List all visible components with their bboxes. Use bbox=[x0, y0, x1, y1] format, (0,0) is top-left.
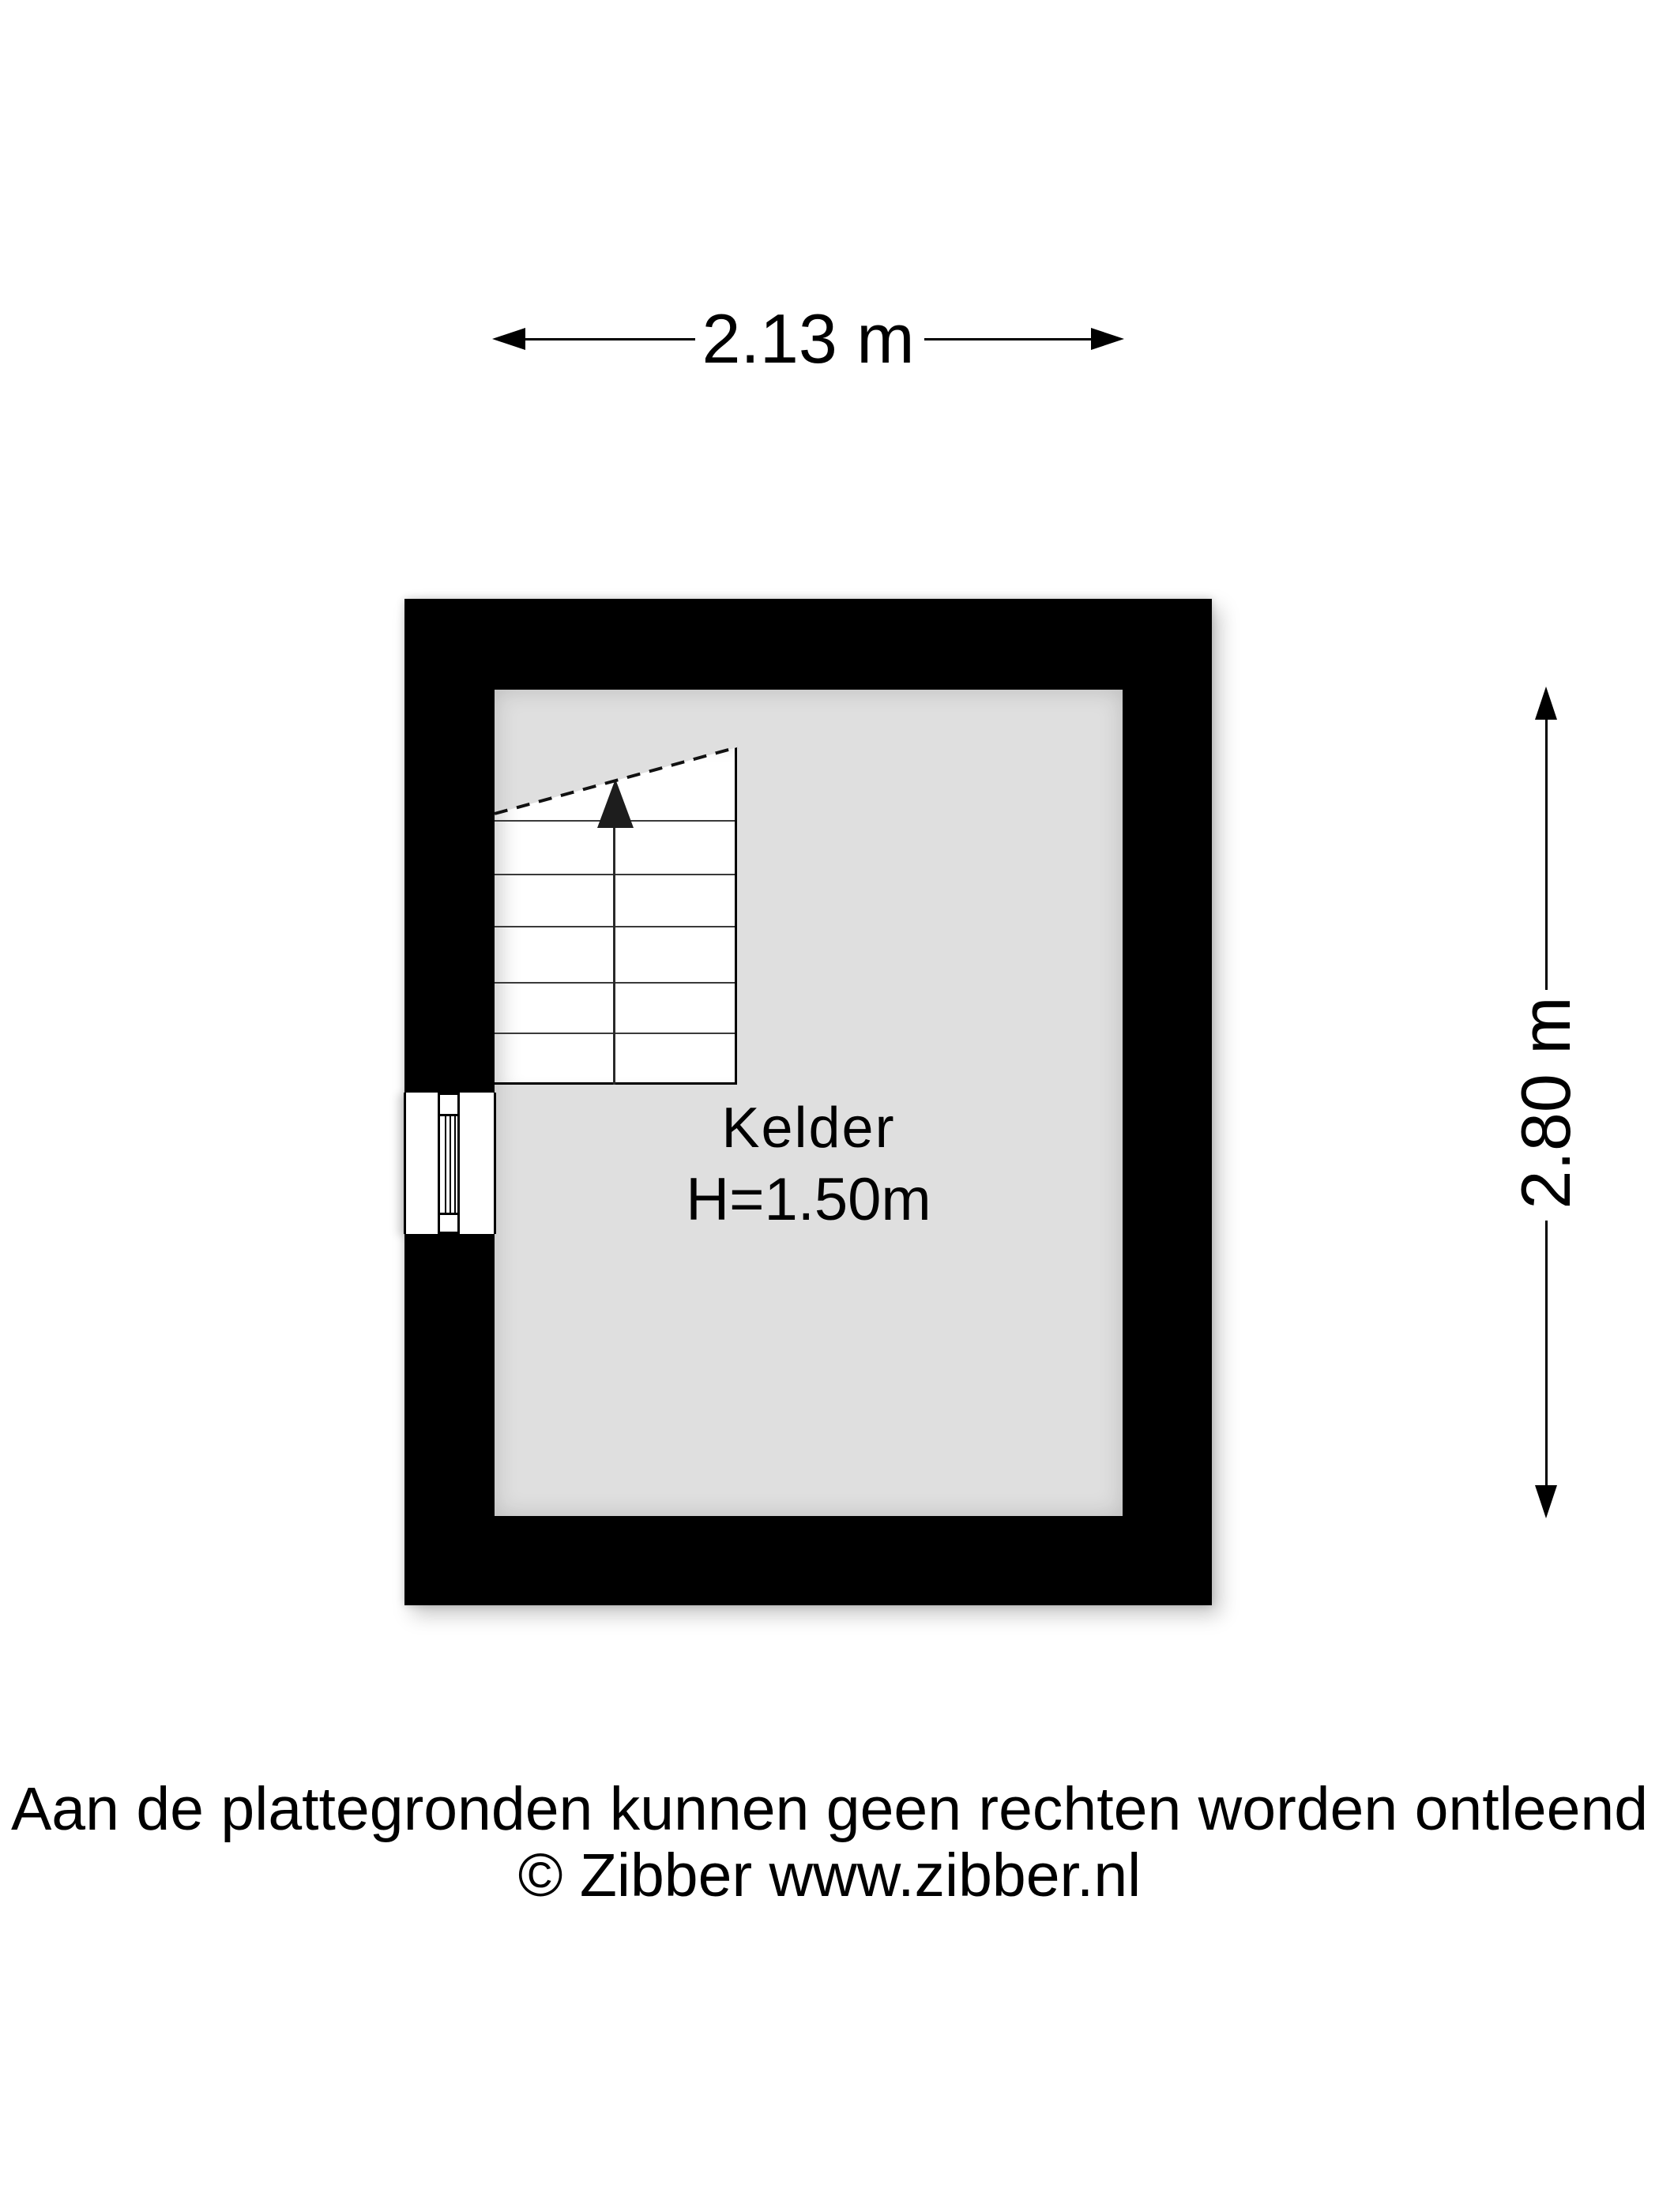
ceiling-height-label: H=1.50m bbox=[495, 1170, 1123, 1230]
copyright-text: © Zibber www.zibber.nl bbox=[0, 1842, 1659, 1909]
window-glazing-line bbox=[445, 1116, 446, 1213]
floorplan-page: 2.13 m bbox=[0, 0, 1659, 2212]
width-dimension-line-right bbox=[924, 338, 1097, 340]
floor-plan: Kelder H=1.50m bbox=[404, 599, 1212, 1605]
height-dimension-line-bottom bbox=[1545, 1221, 1548, 1487]
window-glazing-line bbox=[450, 1116, 451, 1213]
arrow-down-icon bbox=[1535, 1485, 1557, 1518]
window-glazing-line bbox=[454, 1116, 456, 1213]
stair-direction-arrow-shaft bbox=[613, 826, 615, 1085]
arrow-right-icon bbox=[1091, 328, 1124, 350]
stair-direction-arrow-icon bbox=[597, 779, 634, 828]
window-frame bbox=[438, 1093, 460, 1234]
disclaimer-text: Aan de plattegronden kunnen geen rechten… bbox=[0, 1776, 1659, 1842]
window-frame-divider bbox=[440, 1213, 457, 1215]
footer: Aan de plattegronden kunnen geen rechten… bbox=[0, 1776, 1659, 1909]
window bbox=[404, 1093, 496, 1234]
window-outer-edge-line bbox=[404, 1093, 406, 1234]
room-name-label: Kelder bbox=[495, 1100, 1123, 1157]
